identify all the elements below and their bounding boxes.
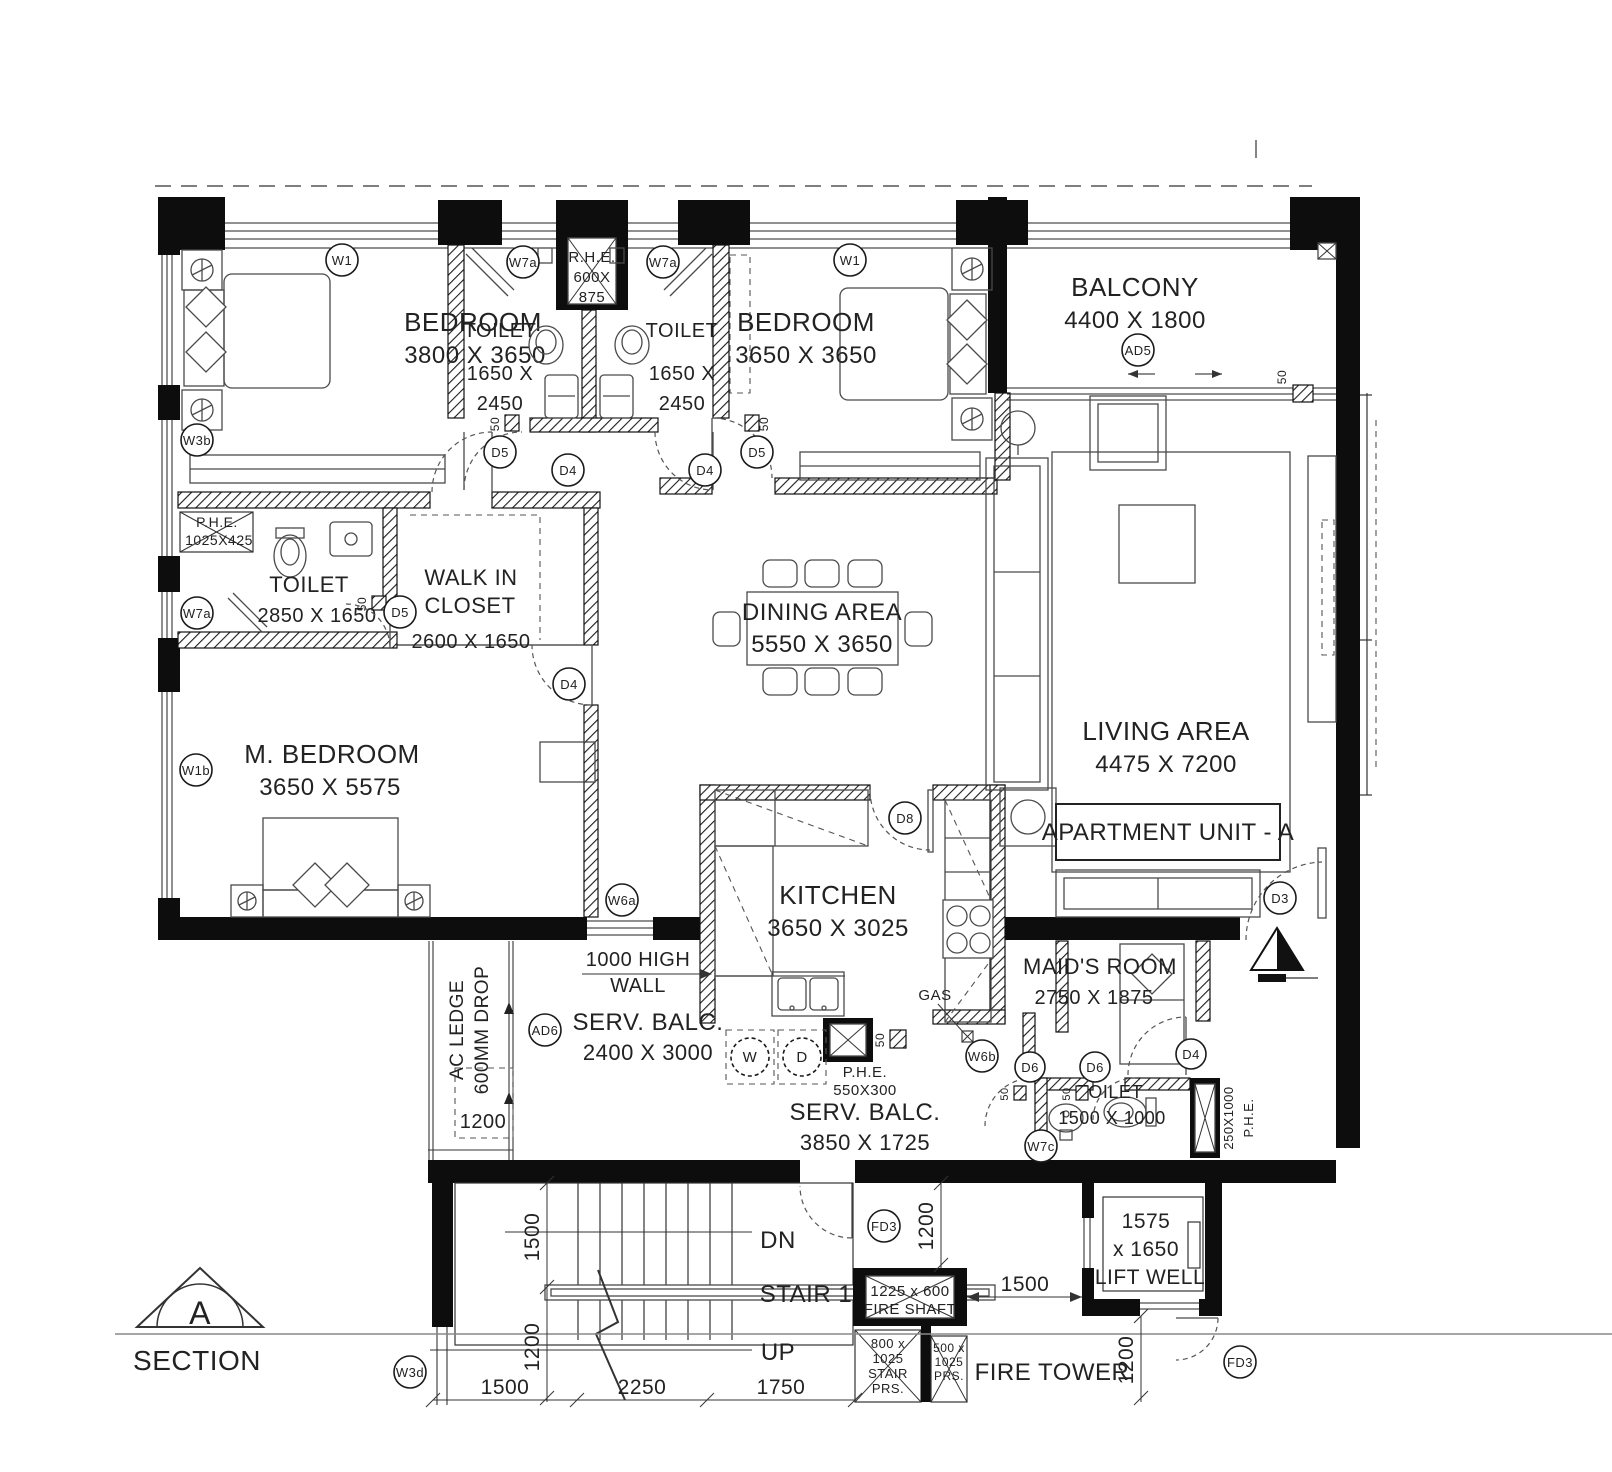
gap-50-d6a: 50 [999, 1087, 1011, 1100]
marker-d5-t3: D5 [384, 596, 416, 628]
svg-text:W1: W1 [840, 253, 861, 268]
prs-l3: PRS. [934, 1369, 964, 1383]
serv-balc1-dims: 2400 X 3000 [583, 1040, 713, 1065]
phe-serv-label: P.H.E. [843, 1064, 887, 1081]
phe-serv: P.H.E. 550X300 [823, 1018, 897, 1099]
svg-text:D8: D8 [896, 811, 914, 826]
maids-room-dims: 2750 X 1875 [1035, 987, 1154, 1009]
marker-w1-bed2: W1 [834, 244, 866, 276]
marker-w7a-t3: W7a [181, 597, 213, 629]
svg-text:FD3: FD3 [1227, 1355, 1253, 1370]
high-wall-note: 1000 HIGH WALL [582, 949, 712, 997]
fire-shaft-label: FIRE SHAFT [864, 1301, 957, 1318]
marker-ad5: AD5 [1122, 334, 1154, 366]
serv-balc-1: SERV. BALC. 2400 X 3000 [573, 1009, 724, 1065]
marker-w1b: W1b [180, 754, 212, 786]
dining-area: DINING AREA 5550 X 3650 [713, 560, 932, 695]
property-boundary [155, 140, 1312, 186]
svg-text:D3: D3 [1271, 891, 1289, 906]
living-label: LIVING AREA [1082, 716, 1249, 746]
dim-1500-c: 1500 [481, 1376, 530, 1399]
living-dims: 4475 X 7200 [1095, 751, 1237, 778]
rhe-label: R.H.E. [568, 249, 615, 266]
toilet1-label: TOILET [464, 320, 537, 342]
marker-w3d: W3d [394, 1356, 426, 1388]
marker-d5-t1: D5 [484, 436, 516, 468]
lift-dim1: 1575 [1122, 1210, 1171, 1233]
phe-maid-dims: 250X1000 [1221, 1086, 1236, 1149]
phe-maid-label: P.H.E. [1241, 1099, 1256, 1138]
marker-w7a-t1: W7a [507, 246, 539, 278]
marker-d3: D3 [1264, 882, 1296, 914]
fire-tower-label: FIRE TOWER [975, 1359, 1130, 1386]
maids-room: MAID'S ROOM 2750 X 1875 [1023, 944, 1184, 1064]
svg-text:FD3: FD3 [871, 1219, 897, 1234]
svg-text:AD5: AD5 [1125, 343, 1152, 358]
stair-prs-l1: 800 x [871, 1336, 905, 1351]
exterior-windows-top [178, 223, 1336, 248]
rhe-dim2: 875 [579, 289, 606, 306]
dim-1200-stair: 1200 [915, 1202, 938, 1251]
svg-text:W1b: W1b [182, 763, 210, 778]
gap-50-d6b: 50 [1061, 1087, 1073, 1100]
kitchen-dims: 3650 X 3025 [767, 915, 909, 942]
svg-text:W7a: W7a [509, 255, 538, 270]
phe-closet-label: P.H.E. [196, 514, 238, 530]
svg-text:W3b: W3b [183, 433, 211, 448]
phe-maid: 250X1000 P.H.E. [1190, 1078, 1256, 1158]
ac-ledge-label2: 600MM DROP [472, 966, 493, 1095]
marker-w6b: W6b [966, 1040, 998, 1072]
maid-toilet: TOILET 1500 X 1000 50 50 [999, 1082, 1166, 1140]
closet-label2: CLOSET [424, 593, 515, 618]
stair-prs-l3: STAIR [868, 1366, 908, 1381]
bedroom2-dims: 3650 X 3650 [735, 342, 877, 369]
apartment-unit-label: APARTMENT UNIT - A [1042, 819, 1295, 846]
closet-dims: 2600 X 1650 [412, 631, 531, 653]
lift-dim2: x 1650 [1113, 1238, 1179, 1261]
svg-text:D4: D4 [560, 677, 578, 692]
svg-text:D5: D5 [491, 445, 509, 460]
stair-label: STAIR 1 [760, 1281, 852, 1308]
master-bedroom-label: M. BEDROOM [244, 739, 419, 769]
lift-well: 1575 x 1650 LIFT WELL [1082, 1183, 1222, 1316]
marker-d4-bed2: D4 [689, 454, 721, 486]
svg-text:D6: D6 [1086, 1060, 1104, 1075]
marker-w3b: W3b [181, 424, 213, 456]
rhe-dim1: 600X [573, 269, 610, 286]
toilet1-dims1: 1650 X [467, 363, 533, 385]
marker-fd3-stair: FD3 [868, 1210, 900, 1242]
marker-w7a-t2: W7a [647, 246, 679, 278]
marker-w7c: W7c [1025, 1130, 1057, 1162]
walk-in-closet: WALK IN CLOSET 2600 X 1650 [410, 515, 540, 653]
ac-ledge: AC LEDGE 600MM DROP 1200 [428, 941, 514, 1160]
balcony-label: BALCONY [1071, 272, 1199, 302]
phe-closet-dims: 1025X425 [185, 532, 253, 548]
gap-50-serv: 50 [873, 1033, 887, 1047]
prs-l2: 1025 [935, 1355, 964, 1369]
toilet2-dims2: 2450 [659, 393, 706, 415]
balcony-dims: 4400 X 1800 [1064, 307, 1206, 334]
serv-balc1-label: SERV. BALC. [573, 1009, 724, 1036]
marker-w6a: W6a [606, 884, 638, 916]
marker-w1-bed1: W1 [326, 244, 358, 276]
section-label: SECTION [133, 1345, 261, 1376]
svg-text:D4: D4 [559, 463, 577, 478]
marker-d4-bed1: D4 [552, 454, 584, 486]
maid-toilet-dims: 1500 X 1000 [1058, 1108, 1166, 1128]
serv-balc2-dims: 3850 X 1725 [800, 1130, 930, 1155]
marker-d6-a: D6 [1015, 1052, 1045, 1082]
rhe-shaft: R.H.E. 600X 875 [556, 200, 628, 310]
dim-2250: 2250 [618, 1376, 667, 1399]
dim-1500-lift: 1500 [1001, 1273, 1050, 1296]
stair-prs-l4: PRS. [872, 1381, 904, 1396]
svg-text:W7a: W7a [649, 255, 678, 270]
master-bedroom: M. BEDROOM 3650 X 5575 [231, 739, 595, 917]
high-wall-label1: 1000 HIGH [586, 949, 691, 971]
kitchen-label: KITCHEN [779, 880, 897, 910]
apartment-unit-box: APARTMENT UNIT - A [1042, 804, 1295, 860]
marker-d6-b: D6 [1080, 1052, 1110, 1082]
marker-d4-maid: D4 [1176, 1039, 1206, 1069]
dryer-label: D [796, 1049, 807, 1066]
svg-text:W7c: W7c [1027, 1139, 1055, 1154]
dining-dims: 5550 X 3650 [751, 631, 893, 658]
dim-1750: 1750 [757, 1376, 806, 1399]
floor-plan-canvas: R.H.E. 600X 875 BEDROOM 3800 X 3650 BEDR [0, 0, 1612, 1472]
gap-50-balcony: 50 [1275, 370, 1289, 384]
svg-text:D5: D5 [748, 445, 766, 460]
serv-balc2-label: SERV. BALC. [790, 1099, 941, 1126]
serv-balc-2: SERV. BALC. 3850 X 1725 [790, 1099, 941, 1155]
svg-text:D5: D5 [391, 605, 409, 620]
master-toilet-label: TOILET [269, 572, 349, 597]
svg-text:AD6: AD6 [532, 1023, 559, 1038]
ac-ledge-dim: 1200 [460, 1111, 507, 1133]
dim-1500-b: 1200 [521, 1323, 544, 1372]
ac-ledge-label1: AC LEDGE [447, 980, 468, 1080]
gap-50-t2: 50 [757, 417, 771, 431]
closet-label1: WALK IN [424, 565, 517, 590]
high-wall-label2: WALL [610, 975, 666, 997]
toilet2-label: TOILET [646, 320, 719, 342]
maids-room-label: MAID'S ROOM [1023, 954, 1177, 979]
marker-ad6: AD6 [529, 1014, 561, 1046]
svg-text:D4: D4 [1182, 1047, 1200, 1062]
prs-l1: 500 x [933, 1341, 965, 1355]
phe-serv-dims: 550X300 [833, 1082, 897, 1099]
marker-fd3-lobby: FD3 [1224, 1346, 1256, 1378]
svg-text:D4: D4 [696, 463, 714, 478]
marker-d5-t2: D5 [741, 436, 773, 468]
marker-d8: D8 [889, 802, 921, 834]
svg-text:W6b: W6b [968, 1049, 996, 1064]
stair-prs-shaft: 800 x 1025 STAIR PRS. 500 x 1025 PRS. [855, 1326, 967, 1402]
balcony: 50 BALCONY 4400 X 1800 [1007, 243, 1336, 402]
fire-shaft: 1225 x 600 FIRE SHAFT [853, 1268, 967, 1326]
svg-text:W3d: W3d [396, 1365, 424, 1380]
svg-text:D6: D6 [1021, 1060, 1039, 1075]
window-w6a [587, 921, 653, 935]
marker-d4-closet: D4 [553, 668, 585, 700]
stair-dn-label: DN [760, 1227, 796, 1254]
stair-prs-l2: 1025 [873, 1351, 904, 1366]
bedroom2-label: BEDROOM [737, 307, 875, 337]
svg-text:W6a: W6a [608, 893, 637, 908]
gap-50-t1: 50 [488, 417, 502, 431]
section-letter: A [189, 1295, 211, 1331]
washer-dryer: W D [726, 1030, 826, 1084]
toilet1-dims2: 2450 [477, 393, 524, 415]
dim-1200-lift: 1200 [1115, 1336, 1138, 1385]
gas-label: GAS [918, 987, 951, 1004]
dining-label: DINING AREA [742, 599, 902, 626]
lift-label: LIFT WELL [1095, 1266, 1205, 1289]
fire-shaft-dims: 1225 x 600 [870, 1283, 949, 1300]
master-toilet-dims: 2850 X 1650 [258, 605, 377, 627]
dim-1500-a: 1500 [521, 1213, 544, 1262]
svg-text:W7a: W7a [183, 606, 212, 621]
master-bedroom-dims: 3650 X 5575 [259, 774, 401, 801]
stair-up-label: UP [761, 1339, 795, 1366]
toilet2-dims1: 1650 X [649, 363, 715, 385]
floor-plan-drawing: R.H.E. 600X 875 BEDROOM 3800 X 3650 BEDR [0, 0, 1612, 1472]
washer-label: W [743, 1049, 758, 1066]
right-exterior-lines [1360, 393, 1376, 795]
svg-text:W1: W1 [332, 253, 353, 268]
entry-arrow [1251, 928, 1318, 982]
